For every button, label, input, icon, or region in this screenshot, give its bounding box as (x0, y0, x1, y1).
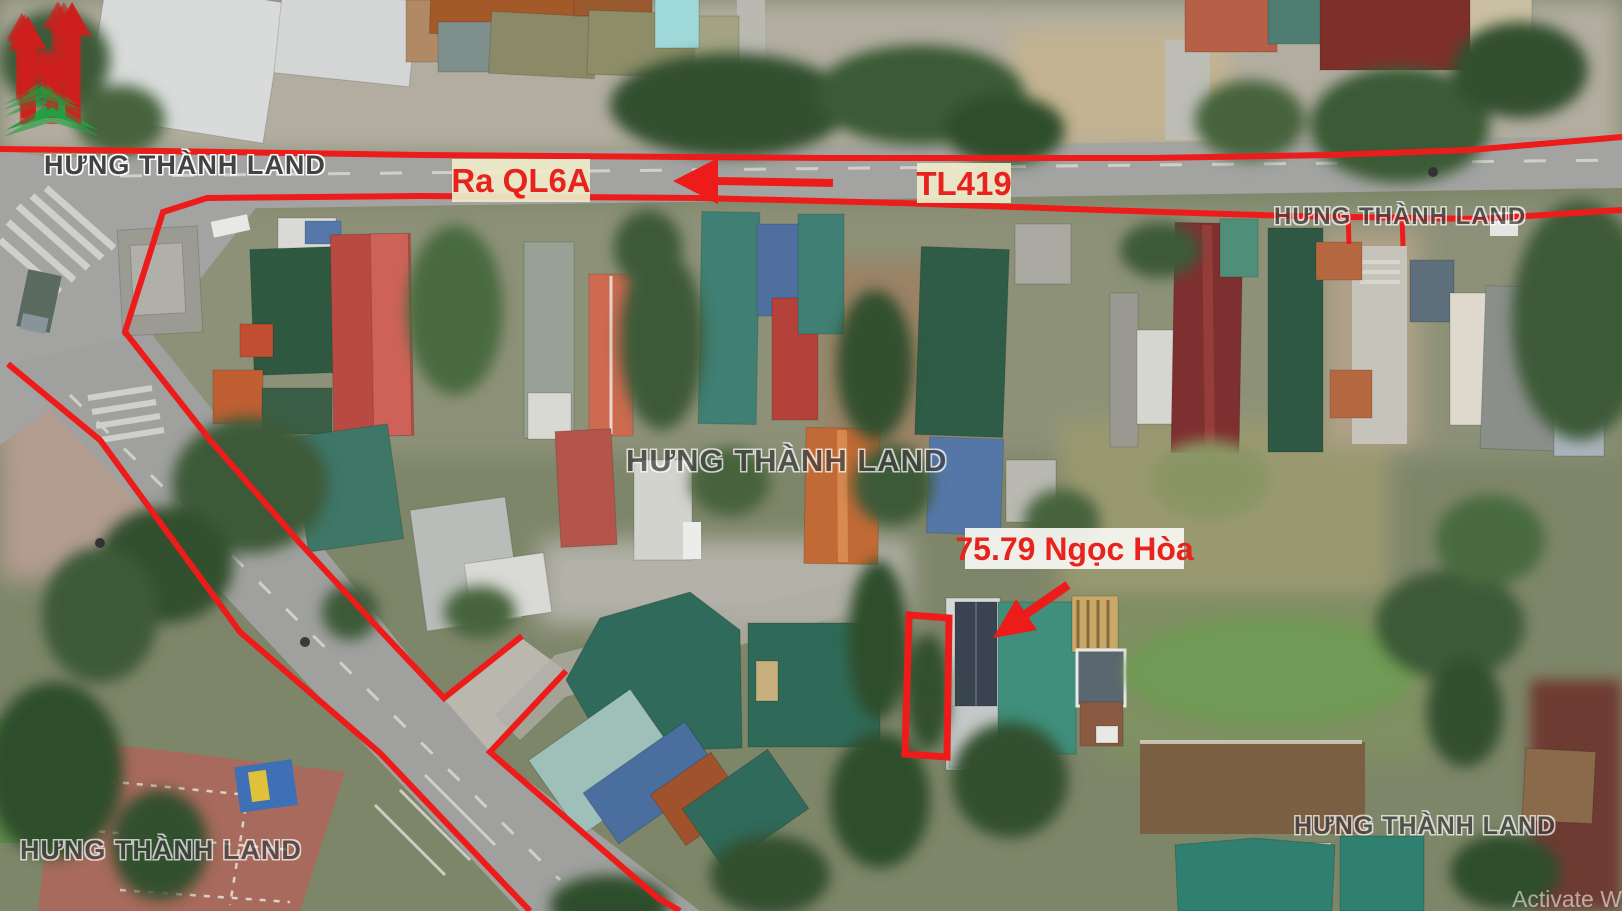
diagonal-road-right-edge-line (490, 671, 680, 911)
activation-watermark: Activate Win (1512, 886, 1622, 911)
brand-watermark-text: HƯNG THÀNH LAND (1294, 812, 1556, 841)
brand-watermark-text: HƯNG THÀNH LAND (1274, 203, 1526, 231)
plot-area-label: 75.79 Ngọc Hòa (965, 528, 1184, 569)
annotated-aerial-photo: Ra QL6A TL419 75.79 Ngọc Hòa HƯNG THÀNH … (0, 0, 1622, 911)
direction-label: Ra QL6A (452, 159, 590, 202)
brand-watermark-text: HƯNG THÀNH LAND (626, 443, 947, 479)
plot-pointer-arrow (993, 585, 1068, 638)
brand-logo-icon (0, 0, 84, 112)
diagonal-road-left-edge-line (8, 364, 530, 911)
plot-boundary-outline (905, 615, 949, 757)
route-label: TL419 (917, 163, 1011, 203)
brand-watermark-text: HƯNG THÀNH LAND (44, 150, 326, 181)
brand-watermark-text: HƯNG THÀNH LAND (20, 835, 302, 866)
